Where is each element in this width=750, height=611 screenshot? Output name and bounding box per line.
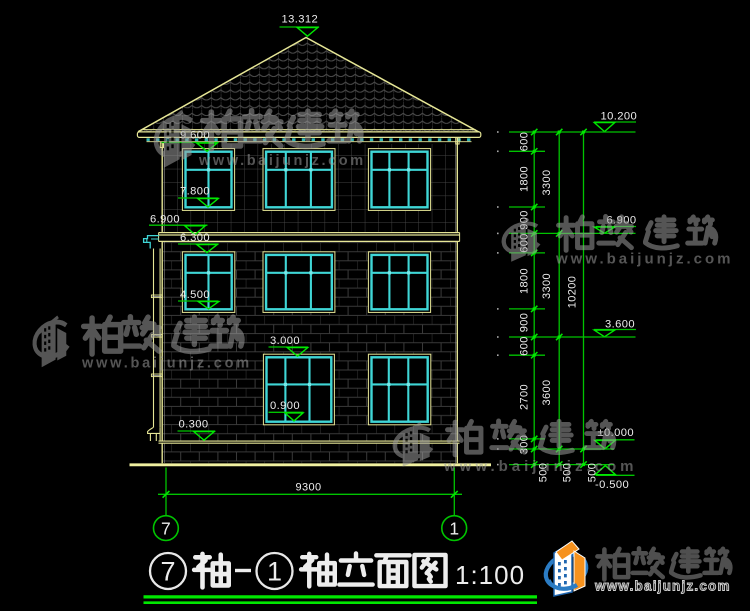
svg-text:600: 600 bbox=[519, 336, 531, 356]
svg-text:4.500: 4.500 bbox=[180, 289, 210, 301]
svg-text:1: 1 bbox=[449, 518, 459, 538]
svg-text:6.900: 6.900 bbox=[150, 214, 180, 226]
svg-text:900: 900 bbox=[519, 313, 531, 333]
svg-text:6.300: 6.300 bbox=[180, 232, 210, 244]
svg-text:13.312: 13.312 bbox=[282, 14, 319, 26]
svg-text:7.800: 7.800 bbox=[180, 186, 210, 198]
svg-text:0.300: 0.300 bbox=[179, 419, 209, 431]
svg-text:www.baijunjz.com: www.baijunjz.com bbox=[198, 153, 366, 169]
svg-text:3600: 3600 bbox=[541, 379, 553, 405]
svg-text:9300: 9300 bbox=[295, 481, 321, 493]
svg-text:1:100: 1:100 bbox=[455, 560, 525, 590]
svg-text:0.900: 0.900 bbox=[270, 400, 300, 412]
svg-text:www.baijunjz.com: www.baijunjz.com bbox=[443, 458, 637, 475]
svg-text:www.baijunjz.com: www.baijunjz.com bbox=[555, 251, 733, 268]
svg-text:3.600: 3.600 bbox=[605, 319, 635, 331]
svg-text:www.baijunjz.com: www.baijunjz.com bbox=[594, 579, 731, 594]
svg-text:1800: 1800 bbox=[519, 166, 531, 192]
svg-text:7: 7 bbox=[161, 518, 171, 538]
svg-text:-0.500: -0.500 bbox=[595, 479, 629, 491]
svg-text:1: 1 bbox=[267, 557, 282, 587]
svg-text:600: 600 bbox=[519, 132, 531, 152]
svg-text:3300: 3300 bbox=[541, 169, 553, 195]
svg-text:3.000: 3.000 bbox=[270, 335, 300, 347]
svg-text:2700: 2700 bbox=[519, 384, 531, 410]
svg-text:10200: 10200 bbox=[567, 276, 579, 309]
svg-text:10.200: 10.200 bbox=[601, 111, 638, 123]
svg-text:www.baijunjz.com: www.baijunjz.com bbox=[81, 356, 252, 372]
svg-text:7: 7 bbox=[160, 557, 175, 587]
svg-text:3300: 3300 bbox=[541, 273, 553, 299]
svg-text:1800: 1800 bbox=[519, 268, 531, 294]
